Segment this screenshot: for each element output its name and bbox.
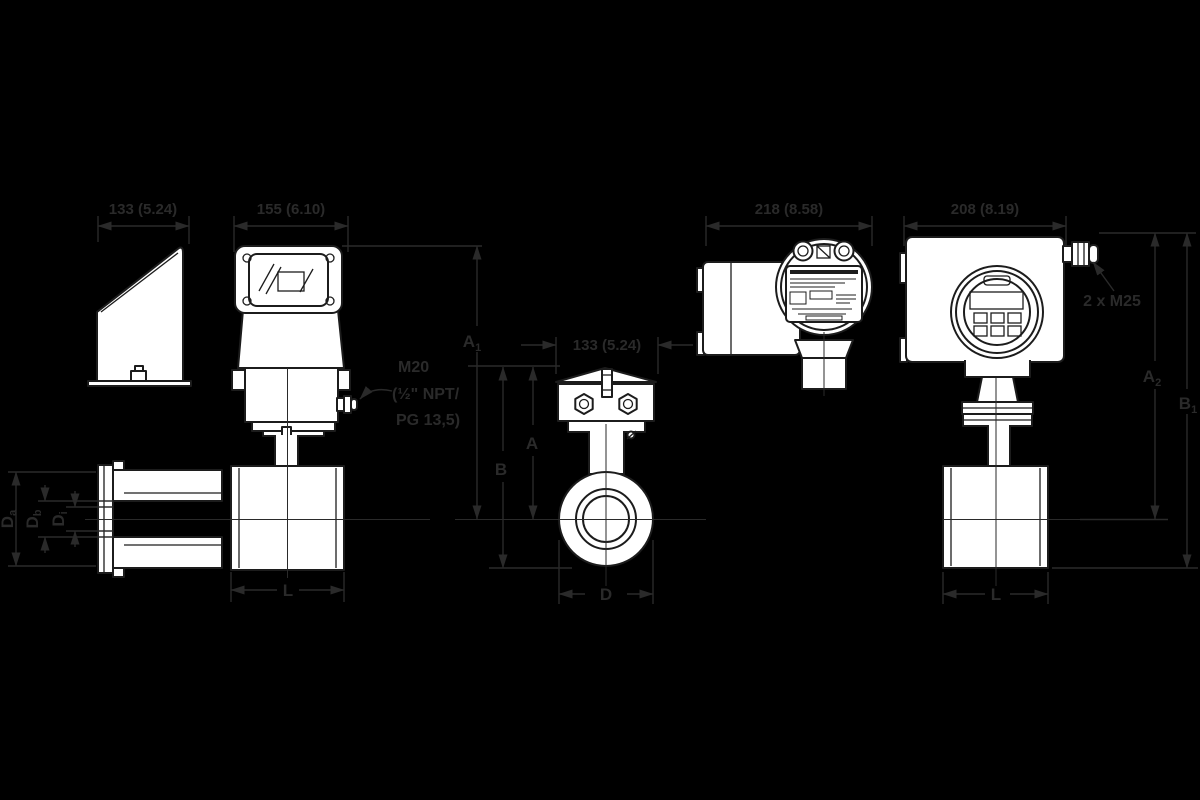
dim-side-width-label: 133 (5.24) (109, 201, 177, 218)
cable-entry-note-left: M20 (½" NPT/ PG 13,5) (360, 359, 460, 429)
side-stem-tube (988, 425, 1010, 466)
dim-a-label: A (526, 434, 538, 453)
wedge-bottom-tab (131, 371, 146, 381)
dim-b-label: B (495, 460, 507, 479)
head-shoulder (238, 310, 344, 368)
dim-height-b1: B1 (1052, 233, 1198, 568)
m20-note-line1: M20 (398, 359, 429, 376)
m25-note-label: 2 x M25 (1083, 293, 1141, 310)
head-center-stud (602, 369, 612, 397)
dim-rear-width-label: 218 (8.58) (755, 201, 823, 218)
dim-front-width-label: 155 (6.10) (257, 201, 325, 218)
dim-bore-da: Da (0, 472, 96, 566)
view-transmitter-rear (697, 239, 872, 389)
dim-d-label: D (600, 585, 612, 604)
section-groove-bottom (113, 568, 124, 577)
view-compact-side (900, 237, 1098, 568)
m25-leader-arrow (1093, 262, 1114, 291)
section-wall-bottom (113, 537, 222, 568)
dim-db-label: Db (23, 509, 44, 528)
neck-flange-plate (252, 422, 335, 431)
dim-b1-label: B1 (1179, 394, 1197, 416)
m20-note-line2: (½" NPT/ (392, 386, 460, 403)
wedge-base-plate (88, 381, 191, 386)
section-groove-top (113, 461, 124, 470)
dim-di-label: Di (49, 511, 70, 526)
side-neck-adapter (977, 377, 1018, 402)
cable-entry-note-right: 2 x M25 (1083, 262, 1141, 310)
housing-pedestal (965, 360, 1030, 377)
dim-wafer-width-label: 133 (5.24) (573, 337, 641, 354)
dim-height-a: A (468, 366, 560, 519)
hex-nut-left (575, 394, 592, 414)
dim-front-width: 155 (6.10) (234, 201, 348, 252)
section-wall-top (113, 470, 222, 501)
process-flange-stack (962, 402, 1033, 426)
terminal-box (245, 368, 338, 422)
dim-rear-width: 218 (8.58) (706, 201, 872, 246)
mount-lug-left (232, 370, 246, 390)
dim-l-right-label: L (991, 585, 1001, 604)
terminal-screw-right (835, 242, 854, 261)
dim-da-label: Da (0, 509, 19, 528)
cable-gland-m20 (337, 396, 357, 413)
neck-vent-screw (627, 431, 636, 439)
neck-tube (275, 435, 298, 466)
m20-leader-arrow (360, 390, 392, 399)
dim-l-left-label: L (283, 581, 293, 600)
dim-side-width: 133 (5.24) (98, 201, 189, 244)
m20-note-line3: PG 13,5) (396, 412, 460, 429)
terminal-screw-left (794, 242, 813, 261)
drawing-canvas: 133 (5.24) 155 (6.10) 133 (5.24) 218 (8.… (0, 0, 1200, 800)
neck-center-screw (282, 427, 291, 436)
dim-height-a1: A1 (342, 246, 482, 519)
dim-a1-label: A1 (463, 332, 481, 354)
dim-right-width-label: 208 (8.19) (951, 201, 1019, 218)
flowmeter-dimensional-drawing: 133 (5.24) 155 (6.10) 133 (5.24) 218 (8.… (0, 0, 1200, 800)
dim-height-a2: A2 (1080, 233, 1196, 520)
nameplate (786, 266, 862, 322)
hex-nut-right (619, 394, 636, 414)
view-transmitter-side (88, 248, 191, 386)
dim-a2-label: A2 (1143, 367, 1161, 389)
view-compact-front (231, 246, 357, 570)
wedge-housing (97, 248, 183, 381)
